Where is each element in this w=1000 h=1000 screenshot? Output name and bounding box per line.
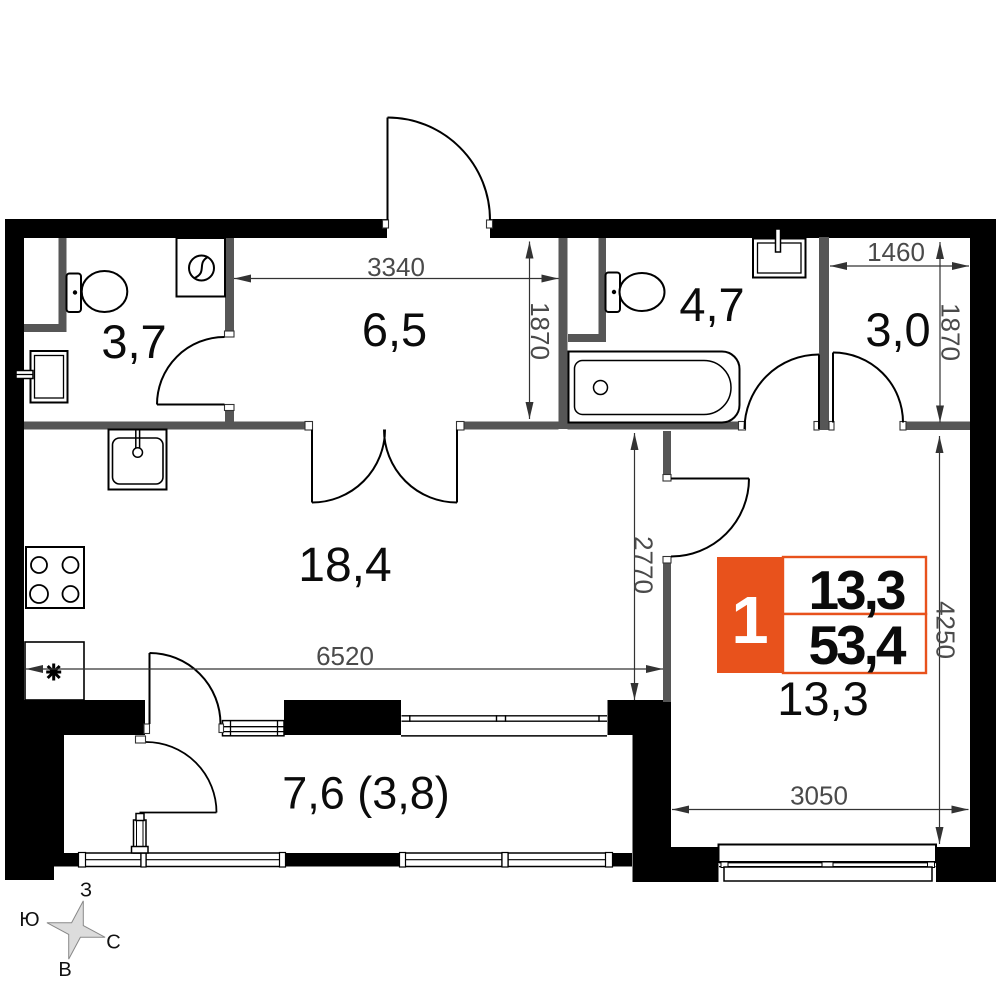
svg-text:6,5: 6,5	[362, 303, 427, 356]
svg-text:3050: 3050	[790, 781, 848, 811]
svg-text:2770: 2770	[629, 536, 659, 594]
svg-text:7,6 (3,8): 7,6 (3,8)	[282, 768, 450, 819]
svg-text:1: 1	[731, 583, 768, 658]
svg-text:4250: 4250	[931, 601, 961, 659]
svg-text:С: С	[106, 932, 120, 954]
svg-text:1870: 1870	[936, 303, 966, 361]
svg-text:13,3: 13,3	[808, 559, 904, 621]
svg-text:13,3: 13,3	[777, 672, 868, 725]
svg-text:1460: 1460	[867, 237, 925, 267]
svg-text:Ю: Ю	[19, 909, 39, 931]
svg-text:3340: 3340	[367, 252, 425, 282]
svg-text:З: З	[80, 880, 92, 902]
svg-text:В: В	[58, 959, 71, 981]
svg-text:53,4: 53,4	[808, 614, 906, 676]
svg-text:3,7: 3,7	[101, 315, 166, 368]
svg-text:3,0: 3,0	[865, 303, 930, 356]
svg-text:1870: 1870	[525, 302, 555, 360]
svg-text:4,7: 4,7	[679, 278, 744, 331]
svg-text:6520: 6520	[316, 641, 374, 671]
svg-text:18,4: 18,4	[298, 539, 391, 592]
